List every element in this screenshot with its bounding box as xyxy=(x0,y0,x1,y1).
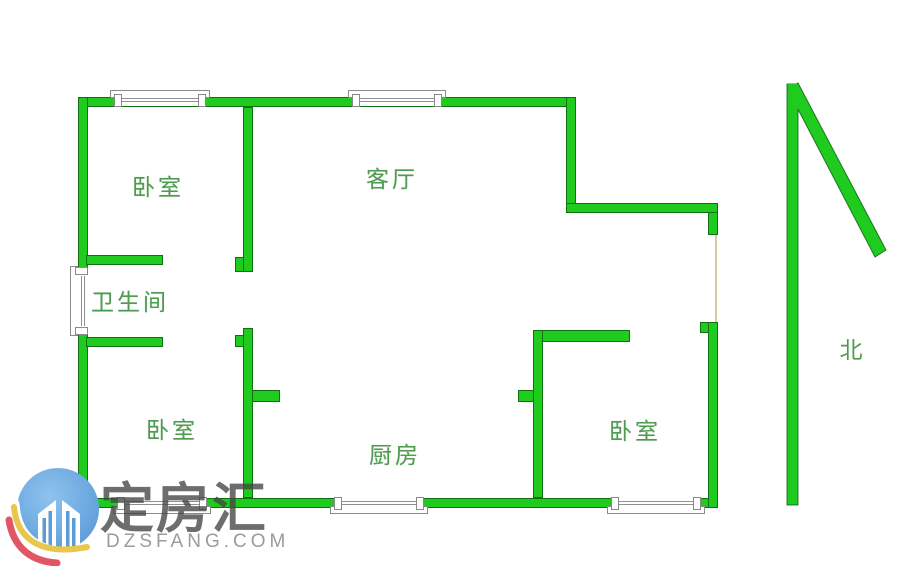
window-bathroom-left xyxy=(70,266,88,336)
room-label-living-room: 客厅 xyxy=(366,160,418,194)
watermark-domain-text: DZSFANG.COM xyxy=(106,531,289,553)
room-label-kitchen: 厨房 xyxy=(369,436,421,470)
wall-bedroom-se-right-stub xyxy=(700,322,709,333)
wall-interior-upper-stub xyxy=(235,257,244,272)
north-arrow xyxy=(778,76,896,512)
brand-logo-icon xyxy=(2,450,116,566)
wall-interior-upper xyxy=(243,107,253,272)
wall-bedroom-se-left xyxy=(533,330,543,498)
compass-north-label: 北 xyxy=(840,331,863,365)
wall-bedroom-se-right xyxy=(708,322,718,508)
wall-bedroom-se-top xyxy=(533,330,630,342)
wall-entry-stub xyxy=(708,212,718,235)
window-kitchen-bottom xyxy=(330,497,428,514)
floorplan-canvas: 卧室 客厅 卫生间 卧室 厨房 卧室 北 定房汇 DZSFANG xyxy=(0,0,900,567)
wall-kitchen-stub-east xyxy=(518,390,534,402)
wall-bathroom-bottom xyxy=(86,337,163,347)
window-pane xyxy=(77,269,88,333)
entry-opening-line xyxy=(715,235,717,322)
window-bedroom-nw-top xyxy=(110,90,210,108)
room-label-bedroom-se: 卧室 xyxy=(609,412,661,446)
wall-livingroom-right xyxy=(566,97,576,213)
room-label-bathroom: 卫生间 xyxy=(91,283,169,317)
wall-bathroom-top xyxy=(86,255,163,265)
room-label-bedroom-nw: 卧室 xyxy=(132,168,184,202)
wall-hall-top xyxy=(566,203,718,213)
window-livingroom-top xyxy=(348,90,446,108)
room-label-bedroom-sw: 卧室 xyxy=(146,411,198,445)
wall-interior-lower-stub-left xyxy=(235,335,244,347)
wall-kitchen-stub-west xyxy=(252,390,280,402)
window-bedroom-se-bottom xyxy=(607,497,705,514)
